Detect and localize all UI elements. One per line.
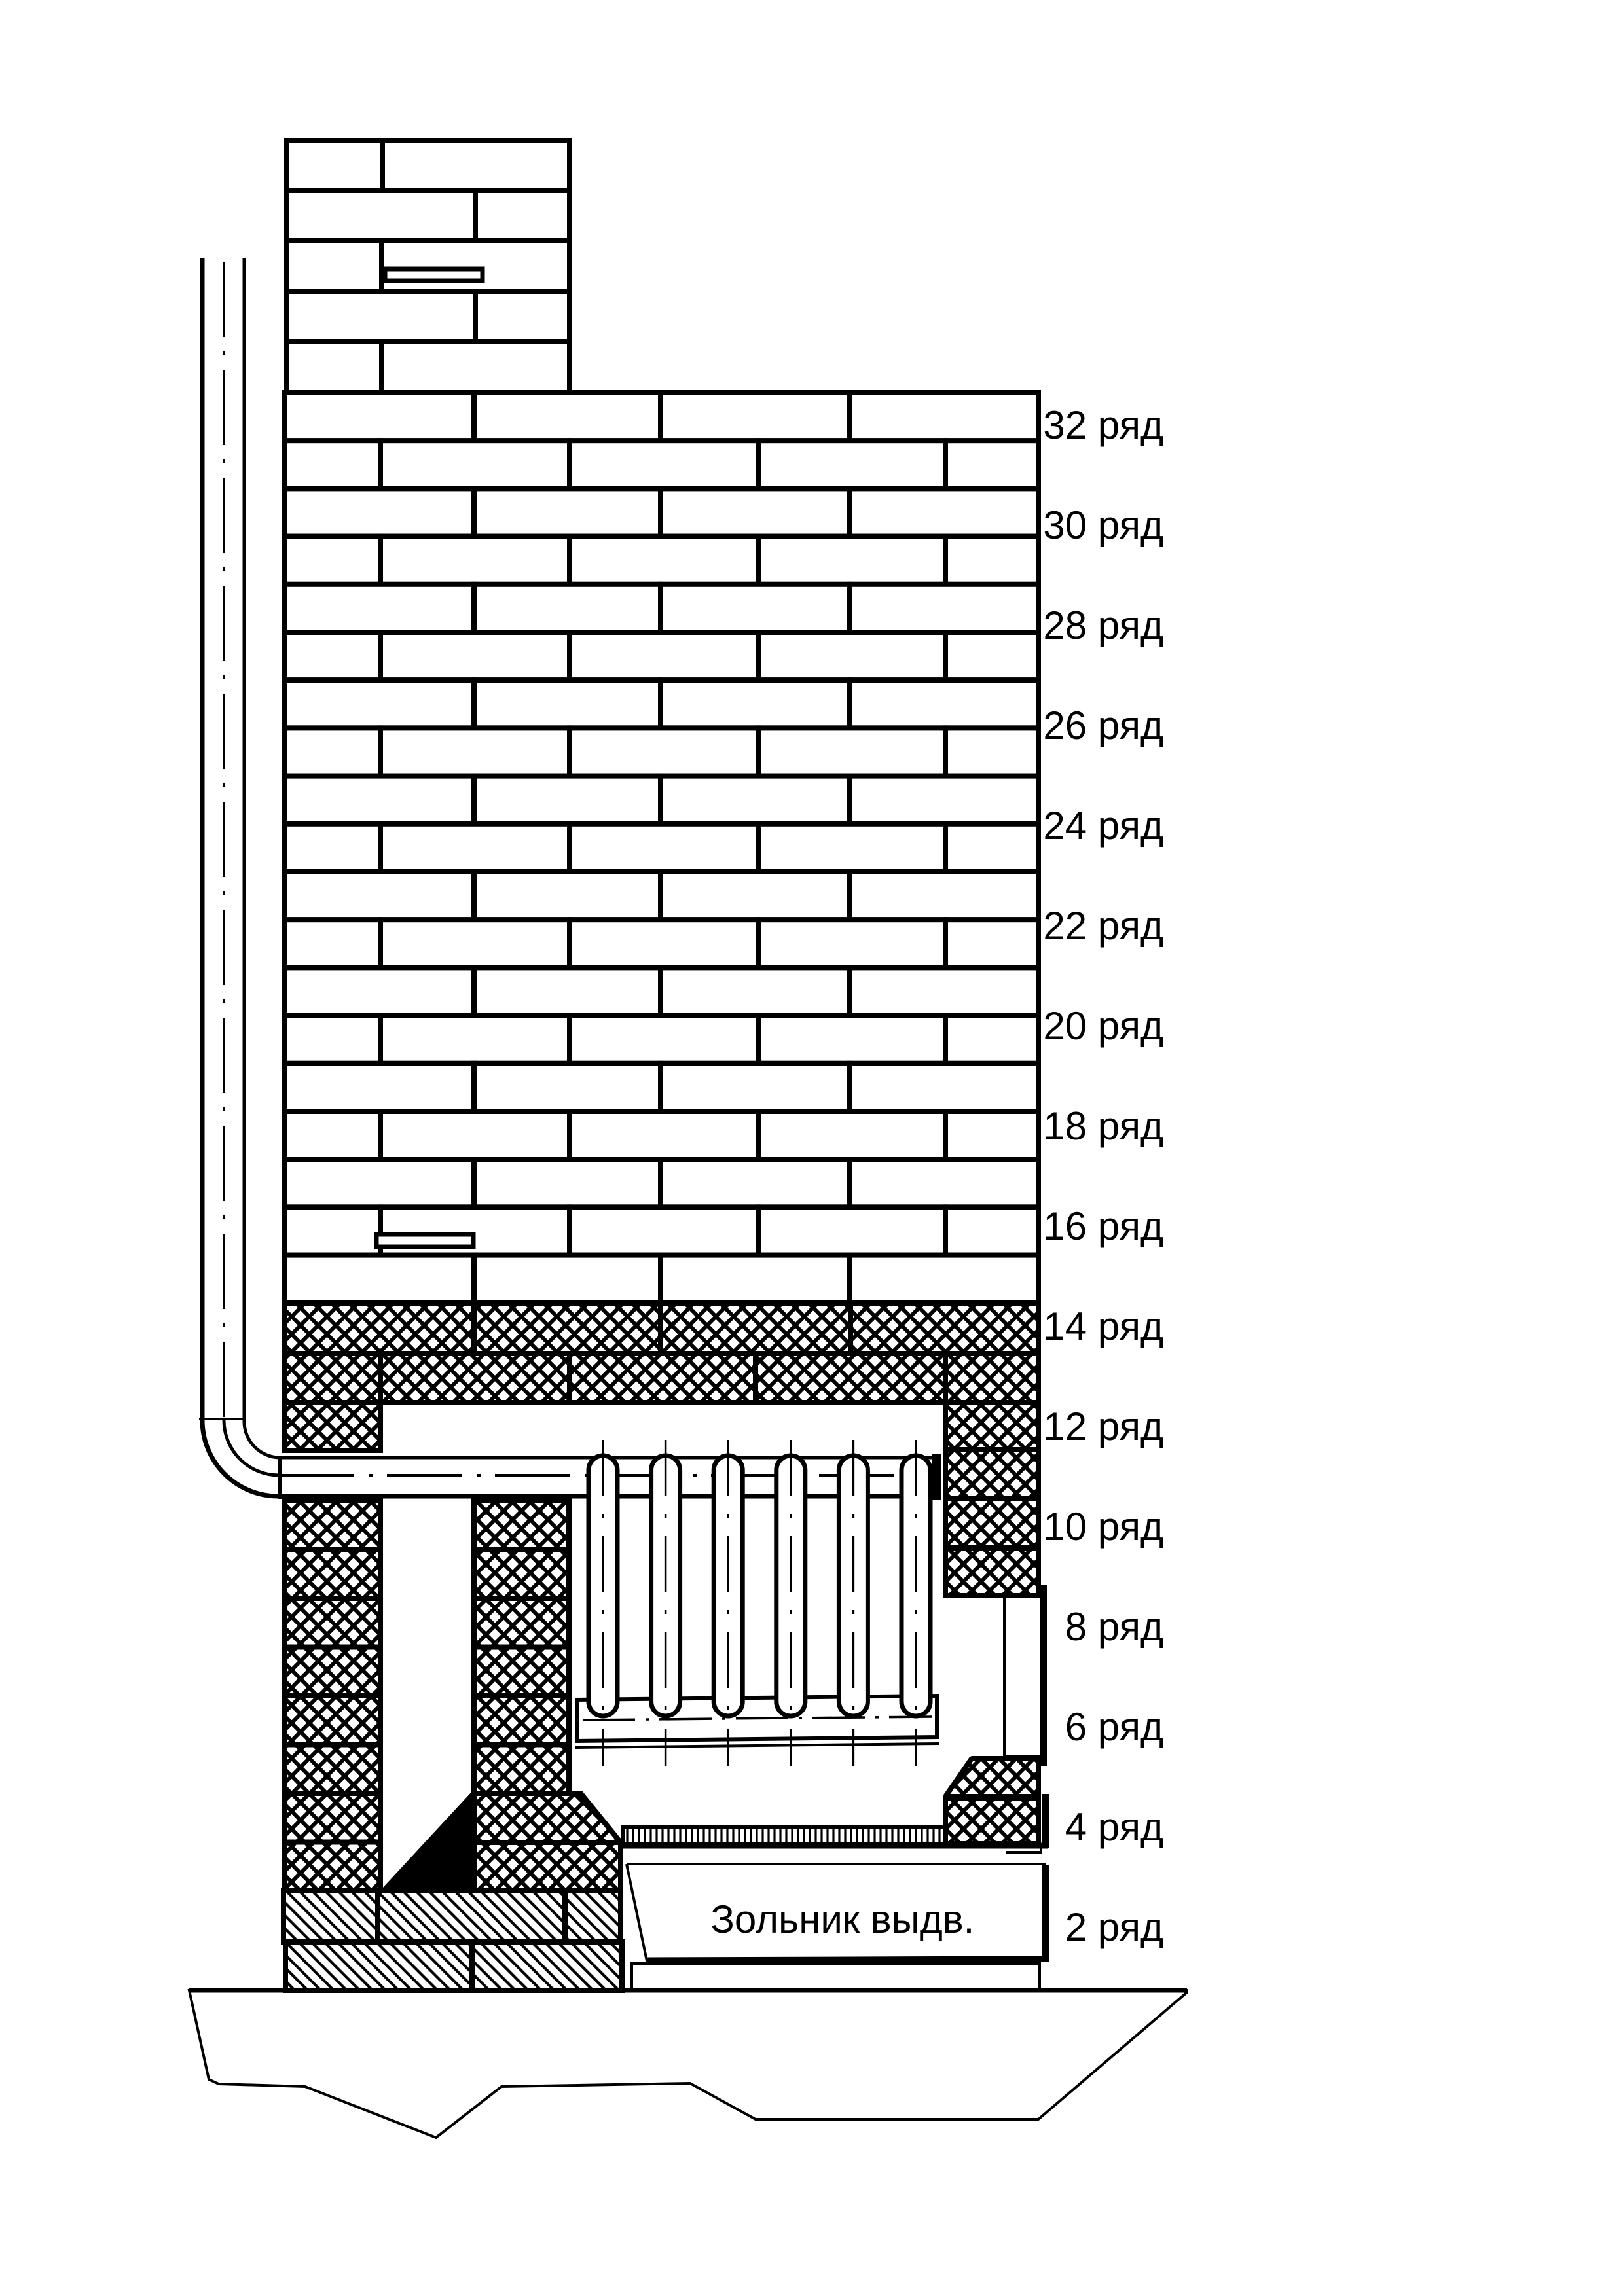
svg-text:18 ряд: 18 ряд [1043, 1104, 1163, 1148]
svg-text:32 ряд: 32 ряд [1043, 403, 1163, 447]
svg-text:10 ряд: 10 ряд [1043, 1505, 1163, 1549]
svg-text:14 ряд: 14 ряд [1043, 1304, 1163, 1348]
svg-text:2 ряд: 2 ряд [1065, 1905, 1163, 1949]
svg-text:4 ряд: 4 ряд [1065, 1805, 1163, 1849]
svg-text:16 ряд: 16 ряд [1043, 1204, 1163, 1248]
svg-text:12 ряд: 12 ряд [1043, 1405, 1163, 1448]
svg-text:20 ряд: 20 ряд [1043, 1004, 1163, 1048]
svg-text:28 ряд: 28 ряд [1043, 603, 1163, 647]
svg-text:30 ряд: 30 ряд [1043, 503, 1163, 547]
svg-text:Зольник выдв.: Зольник выдв. [711, 1897, 975, 1941]
svg-text:8 ряд: 8 ряд [1065, 1605, 1163, 1649]
svg-text:26 ряд: 26 ряд [1043, 704, 1163, 747]
svg-text:22 ряд: 22 ряд [1043, 904, 1163, 948]
svg-text:24 ряд: 24 ряд [1043, 804, 1163, 848]
svg-text:6 ряд: 6 ряд [1065, 1705, 1163, 1749]
